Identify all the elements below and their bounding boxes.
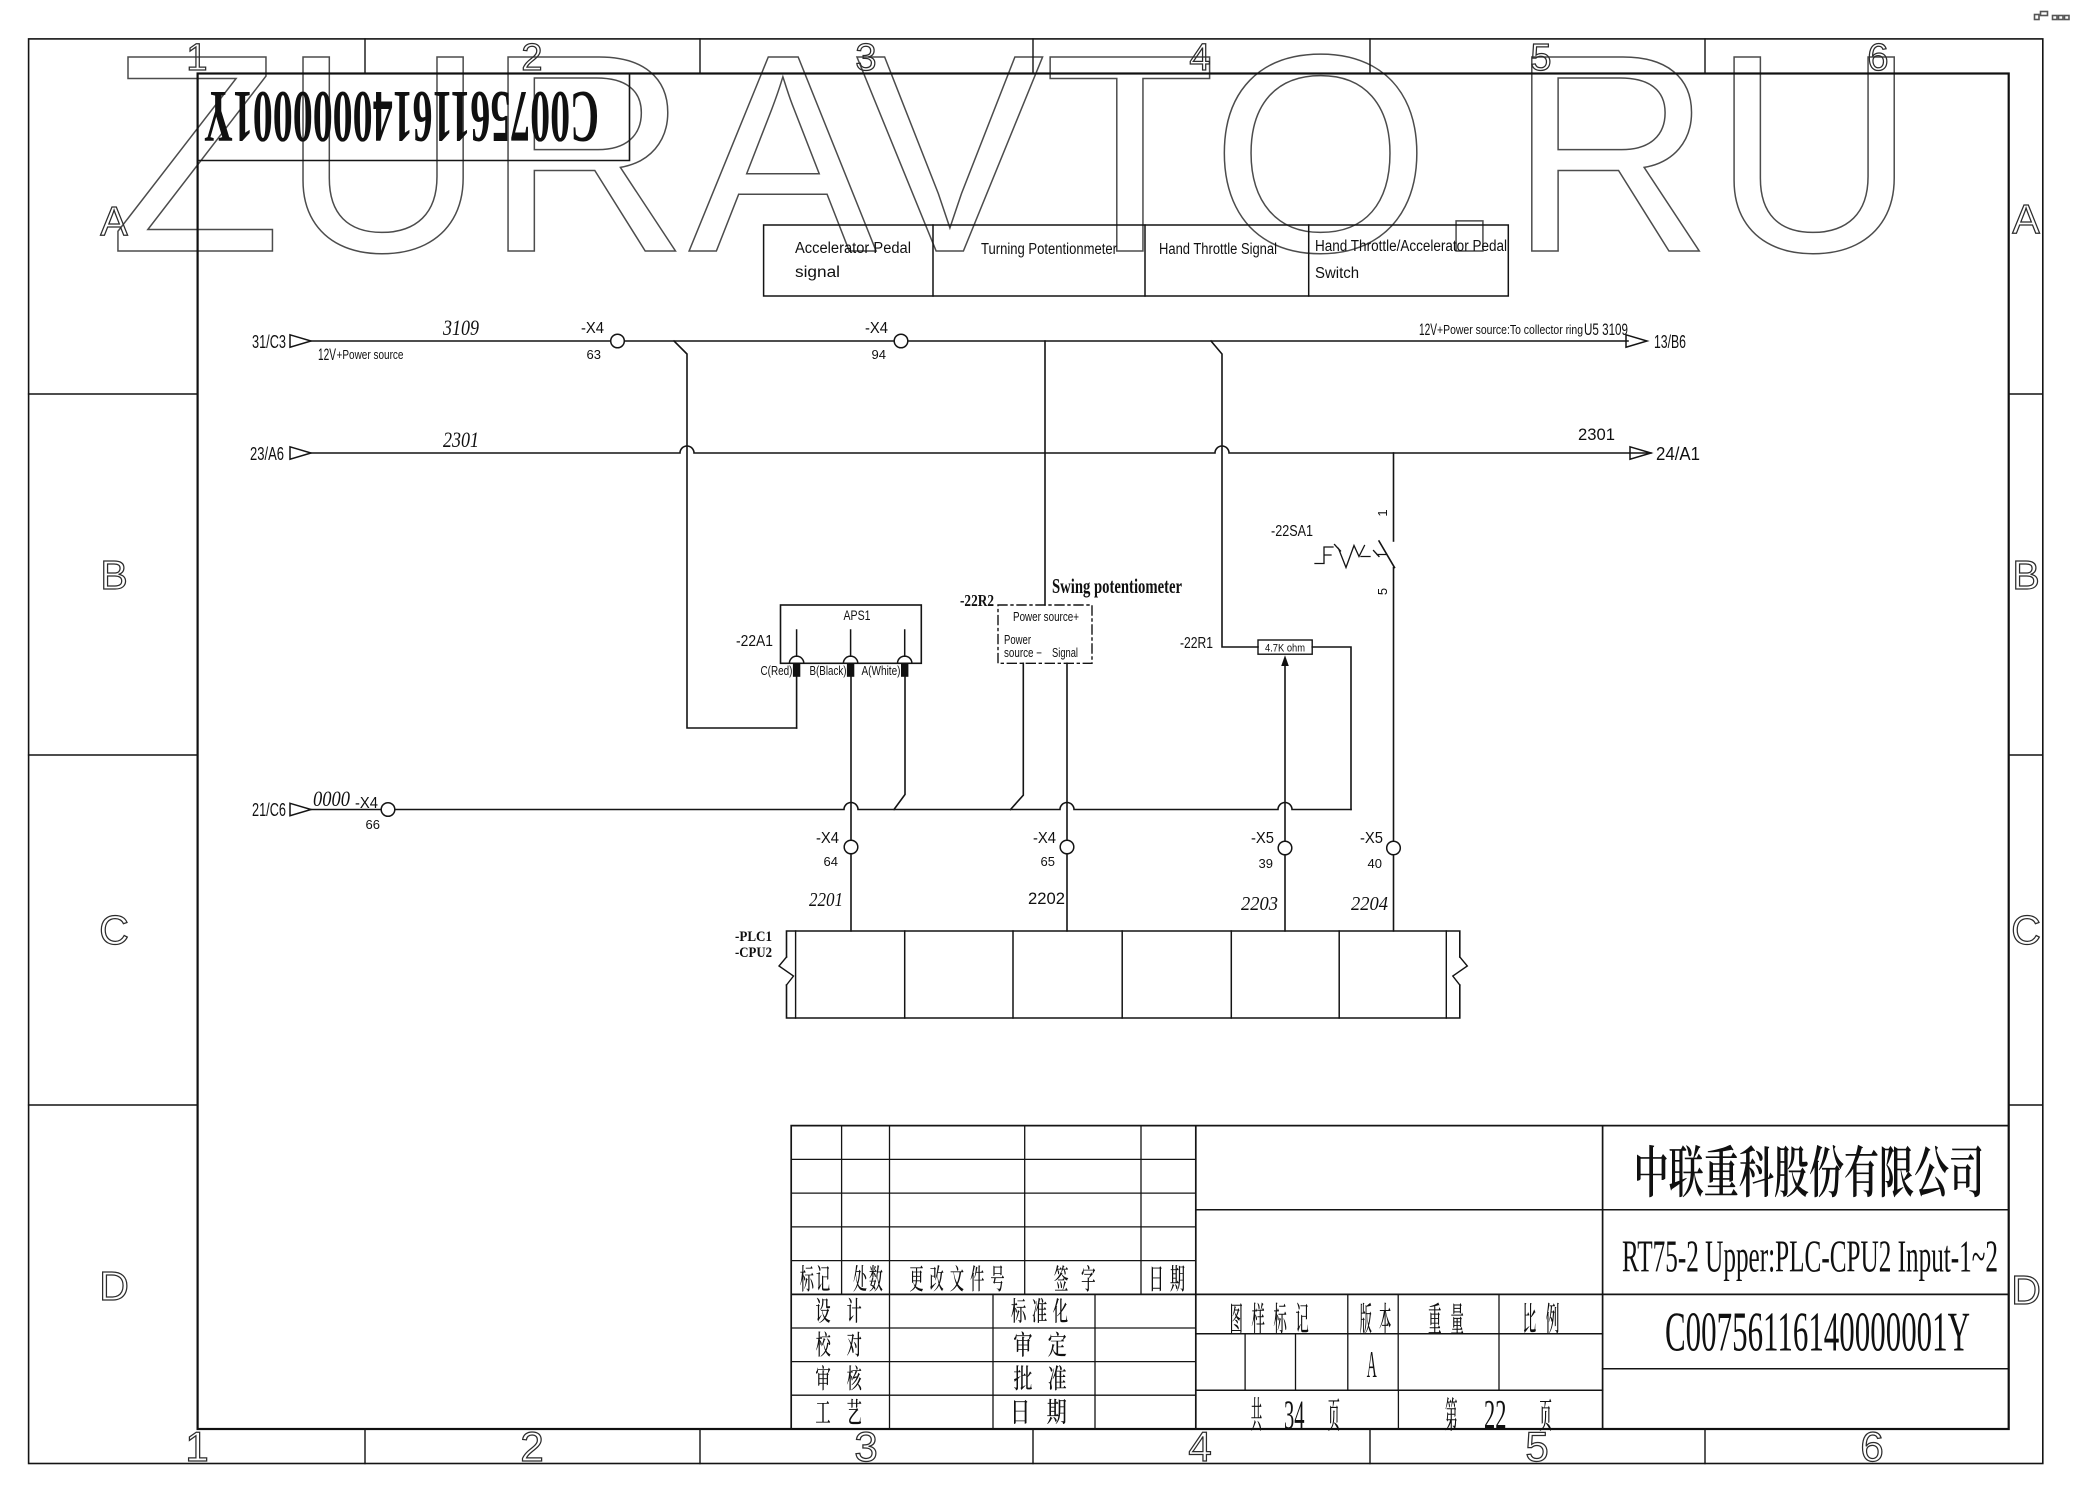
svg-text:-22A1: -22A1 [736, 633, 773, 650]
svg-text:1: 1 [1375, 509, 1390, 516]
svg-text:-22R1: -22R1 [1180, 635, 1213, 652]
svg-text:C00756116140000001Y: C00756116140000001Y [204, 75, 599, 157]
svg-text:2204: 2204 [1351, 893, 1388, 915]
svg-text:Signal: Signal [1052, 646, 1078, 660]
svg-text:-22R2: -22R2 [960, 591, 994, 610]
svg-text:-CPU2: -CPU2 [735, 945, 772, 961]
svg-text:C: C [99, 907, 129, 953]
svg-text:-X4: -X4 [581, 320, 604, 337]
svg-text:22: 22 [1484, 1391, 1506, 1437]
svg-text:U5 3109: U5 3109 [1584, 321, 1628, 339]
svg-text:13/B6: 13/B6 [1654, 332, 1686, 352]
svg-text:C00756116140000001Y: C00756116140000001Y [1665, 1302, 1970, 1364]
svg-text:34: 34 [1284, 1392, 1305, 1438]
svg-text:0000: 0000 [313, 786, 350, 811]
svg-text:-X5: -X5 [1360, 830, 1383, 847]
svg-text:2: 2 [520, 1423, 543, 1470]
svg-text:Hand Throttle Signal: Hand Throttle Signal [1159, 241, 1277, 258]
svg-text:-X4: -X4 [865, 320, 888, 337]
svg-text:2202: 2202 [1028, 889, 1065, 908]
svg-text:Turning Potentionmeter: Turning Potentionmeter [981, 241, 1117, 258]
svg-text:RT75-2 Upper:PLC-CPU2 Input-1~: RT75-2 Upper:PLC-CPU2 Input-1~2 [1622, 1231, 1998, 1282]
svg-text:65: 65 [1041, 854, 1055, 869]
svg-text:5: 5 [1530, 37, 1551, 79]
svg-text:D: D [99, 1263, 129, 1309]
svg-text:Accelerator Pedal: Accelerator Pedal [795, 240, 911, 257]
svg-text:signal: signal [795, 264, 840, 281]
svg-text:66: 66 [366, 817, 380, 832]
svg-text:Hand Throttle/Accelerator Peda: Hand Throttle/Accelerator Pedal [1315, 238, 1507, 255]
svg-text:12V: 12V [318, 346, 336, 364]
svg-text:APS1: APS1 [844, 608, 871, 623]
svg-text:-X5: -X5 [1251, 830, 1274, 847]
svg-text:Power source+: Power source+ [1013, 610, 1079, 624]
svg-text:+Power source:To collector rin: +Power source:To collector ring [1437, 323, 1583, 337]
svg-text:31/C3: 31/C3 [252, 332, 286, 352]
svg-text:2301: 2301 [1578, 425, 1615, 444]
svg-text:-X4: -X4 [355, 795, 378, 812]
svg-text:1: 1 [185, 1423, 208, 1470]
svg-text:2301: 2301 [443, 427, 479, 452]
svg-text:2203: 2203 [1241, 893, 1278, 915]
svg-text:23/A6: 23/A6 [250, 444, 284, 464]
svg-text:12V: 12V [1419, 321, 1437, 339]
svg-text:94: 94 [872, 347, 886, 362]
svg-text:Power: Power [1004, 633, 1031, 647]
svg-text:6: 6 [1860, 1423, 1883, 1470]
svg-text:40: 40 [1368, 856, 1382, 871]
svg-text:source −: source − [1004, 646, 1042, 660]
svg-text:-X4: -X4 [816, 830, 839, 847]
svg-text:B(Black): B(Black) [810, 664, 847, 678]
svg-text:1: 1 [186, 37, 207, 79]
svg-text:C(Red): C(Red) [761, 664, 793, 678]
svg-text:3109: 3109 [442, 315, 479, 340]
svg-text:A: A [100, 198, 128, 244]
svg-text:63: 63 [587, 347, 601, 362]
svg-text:21/C6: 21/C6 [252, 800, 286, 820]
svg-text:A: A [2012, 196, 2040, 242]
svg-text:B: B [2012, 552, 2039, 598]
svg-text:D: D [2011, 1267, 2041, 1313]
svg-text:24/A1: 24/A1 [1656, 444, 1700, 464]
svg-text:2: 2 [521, 37, 542, 79]
svg-text:A(White): A(White) [862, 664, 901, 678]
svg-text:A: A [1367, 1344, 1377, 1386]
svg-text:3: 3 [855, 37, 876, 79]
svg-text:Swing potentiometer: Swing potentiometer [1052, 574, 1182, 598]
svg-text:-X4: -X4 [1033, 830, 1056, 847]
svg-text:+Power source: +Power source [337, 348, 404, 362]
svg-text:B: B [100, 552, 127, 598]
svg-text:C: C [2011, 907, 2041, 953]
svg-text:5: 5 [1375, 588, 1390, 595]
svg-text:-22SA1: -22SA1 [1271, 523, 1313, 540]
svg-text:64: 64 [824, 854, 838, 869]
svg-text:-PLC1: -PLC1 [735, 929, 772, 945]
svg-text:6: 6 [1867, 37, 1888, 79]
svg-text:4.7K ohm: 4.7K ohm [1265, 643, 1305, 655]
svg-text:5: 5 [1525, 1423, 1548, 1470]
svg-text:Switch: Switch [1315, 265, 1359, 282]
svg-text:4: 4 [1189, 37, 1210, 79]
svg-text:4: 4 [1188, 1423, 1211, 1470]
svg-text:2201: 2201 [809, 889, 843, 911]
svg-text:3: 3 [854, 1423, 877, 1470]
svg-text:39: 39 [1259, 856, 1273, 871]
